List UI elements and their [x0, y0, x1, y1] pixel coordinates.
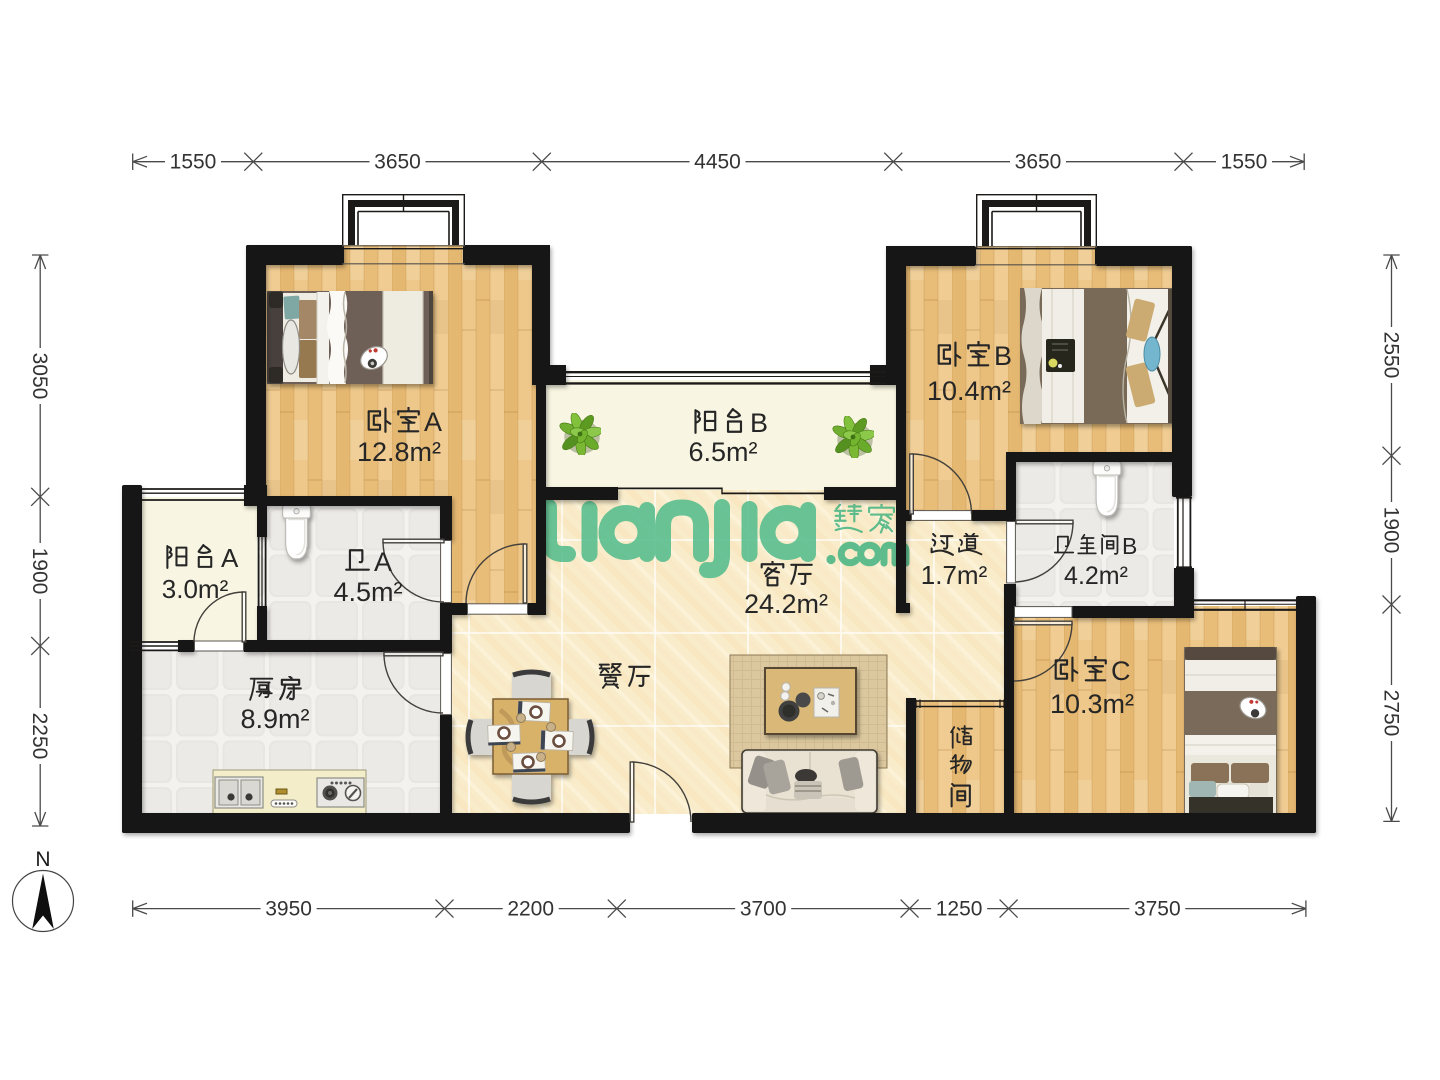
svg-text:1.7m²: 1.7m²	[921, 560, 988, 590]
svg-text:2550: 2550	[1380, 332, 1403, 379]
svg-text:2200: 2200	[507, 898, 554, 921]
svg-text:A: A	[374, 547, 392, 577]
svg-text:4450: 4450	[694, 151, 741, 174]
svg-text:2750: 2750	[1380, 690, 1403, 737]
svg-text:N: N	[35, 848, 50, 871]
svg-text:12.8m²: 12.8m²	[357, 437, 441, 467]
svg-text:8.9m²: 8.9m²	[240, 704, 309, 734]
svg-text:3750: 3750	[1134, 898, 1181, 921]
svg-text:B: B	[994, 341, 1012, 371]
svg-text:10.3m²: 10.3m²	[1050, 689, 1134, 719]
svg-text:10.4m²: 10.4m²	[927, 376, 1011, 406]
svg-text:A: A	[424, 407, 442, 437]
svg-text:B: B	[1122, 533, 1137, 559]
svg-text:B: B	[750, 408, 768, 438]
svg-text:1550: 1550	[170, 151, 217, 174]
svg-text:3.0m²: 3.0m²	[162, 574, 229, 604]
svg-text:C: C	[1111, 656, 1131, 686]
svg-text:1900: 1900	[1380, 507, 1403, 554]
svg-text:3700: 3700	[740, 898, 787, 921]
svg-text:6.5m²: 6.5m²	[688, 437, 757, 467]
svg-text:3650: 3650	[1015, 151, 1062, 174]
svg-text:3950: 3950	[265, 898, 312, 921]
svg-text:A: A	[221, 543, 239, 573]
svg-text:1900: 1900	[28, 548, 51, 595]
svg-text:3650: 3650	[374, 151, 421, 174]
svg-text:2250: 2250	[28, 713, 51, 760]
svg-text:4.5m²: 4.5m²	[333, 577, 402, 607]
svg-text:4.2m²: 4.2m²	[1064, 562, 1128, 590]
svg-text:3050: 3050	[28, 353, 51, 400]
svg-text:1250: 1250	[936, 898, 983, 921]
svg-text:24.2m²: 24.2m²	[744, 589, 828, 619]
svg-text:1550: 1550	[1221, 151, 1268, 174]
